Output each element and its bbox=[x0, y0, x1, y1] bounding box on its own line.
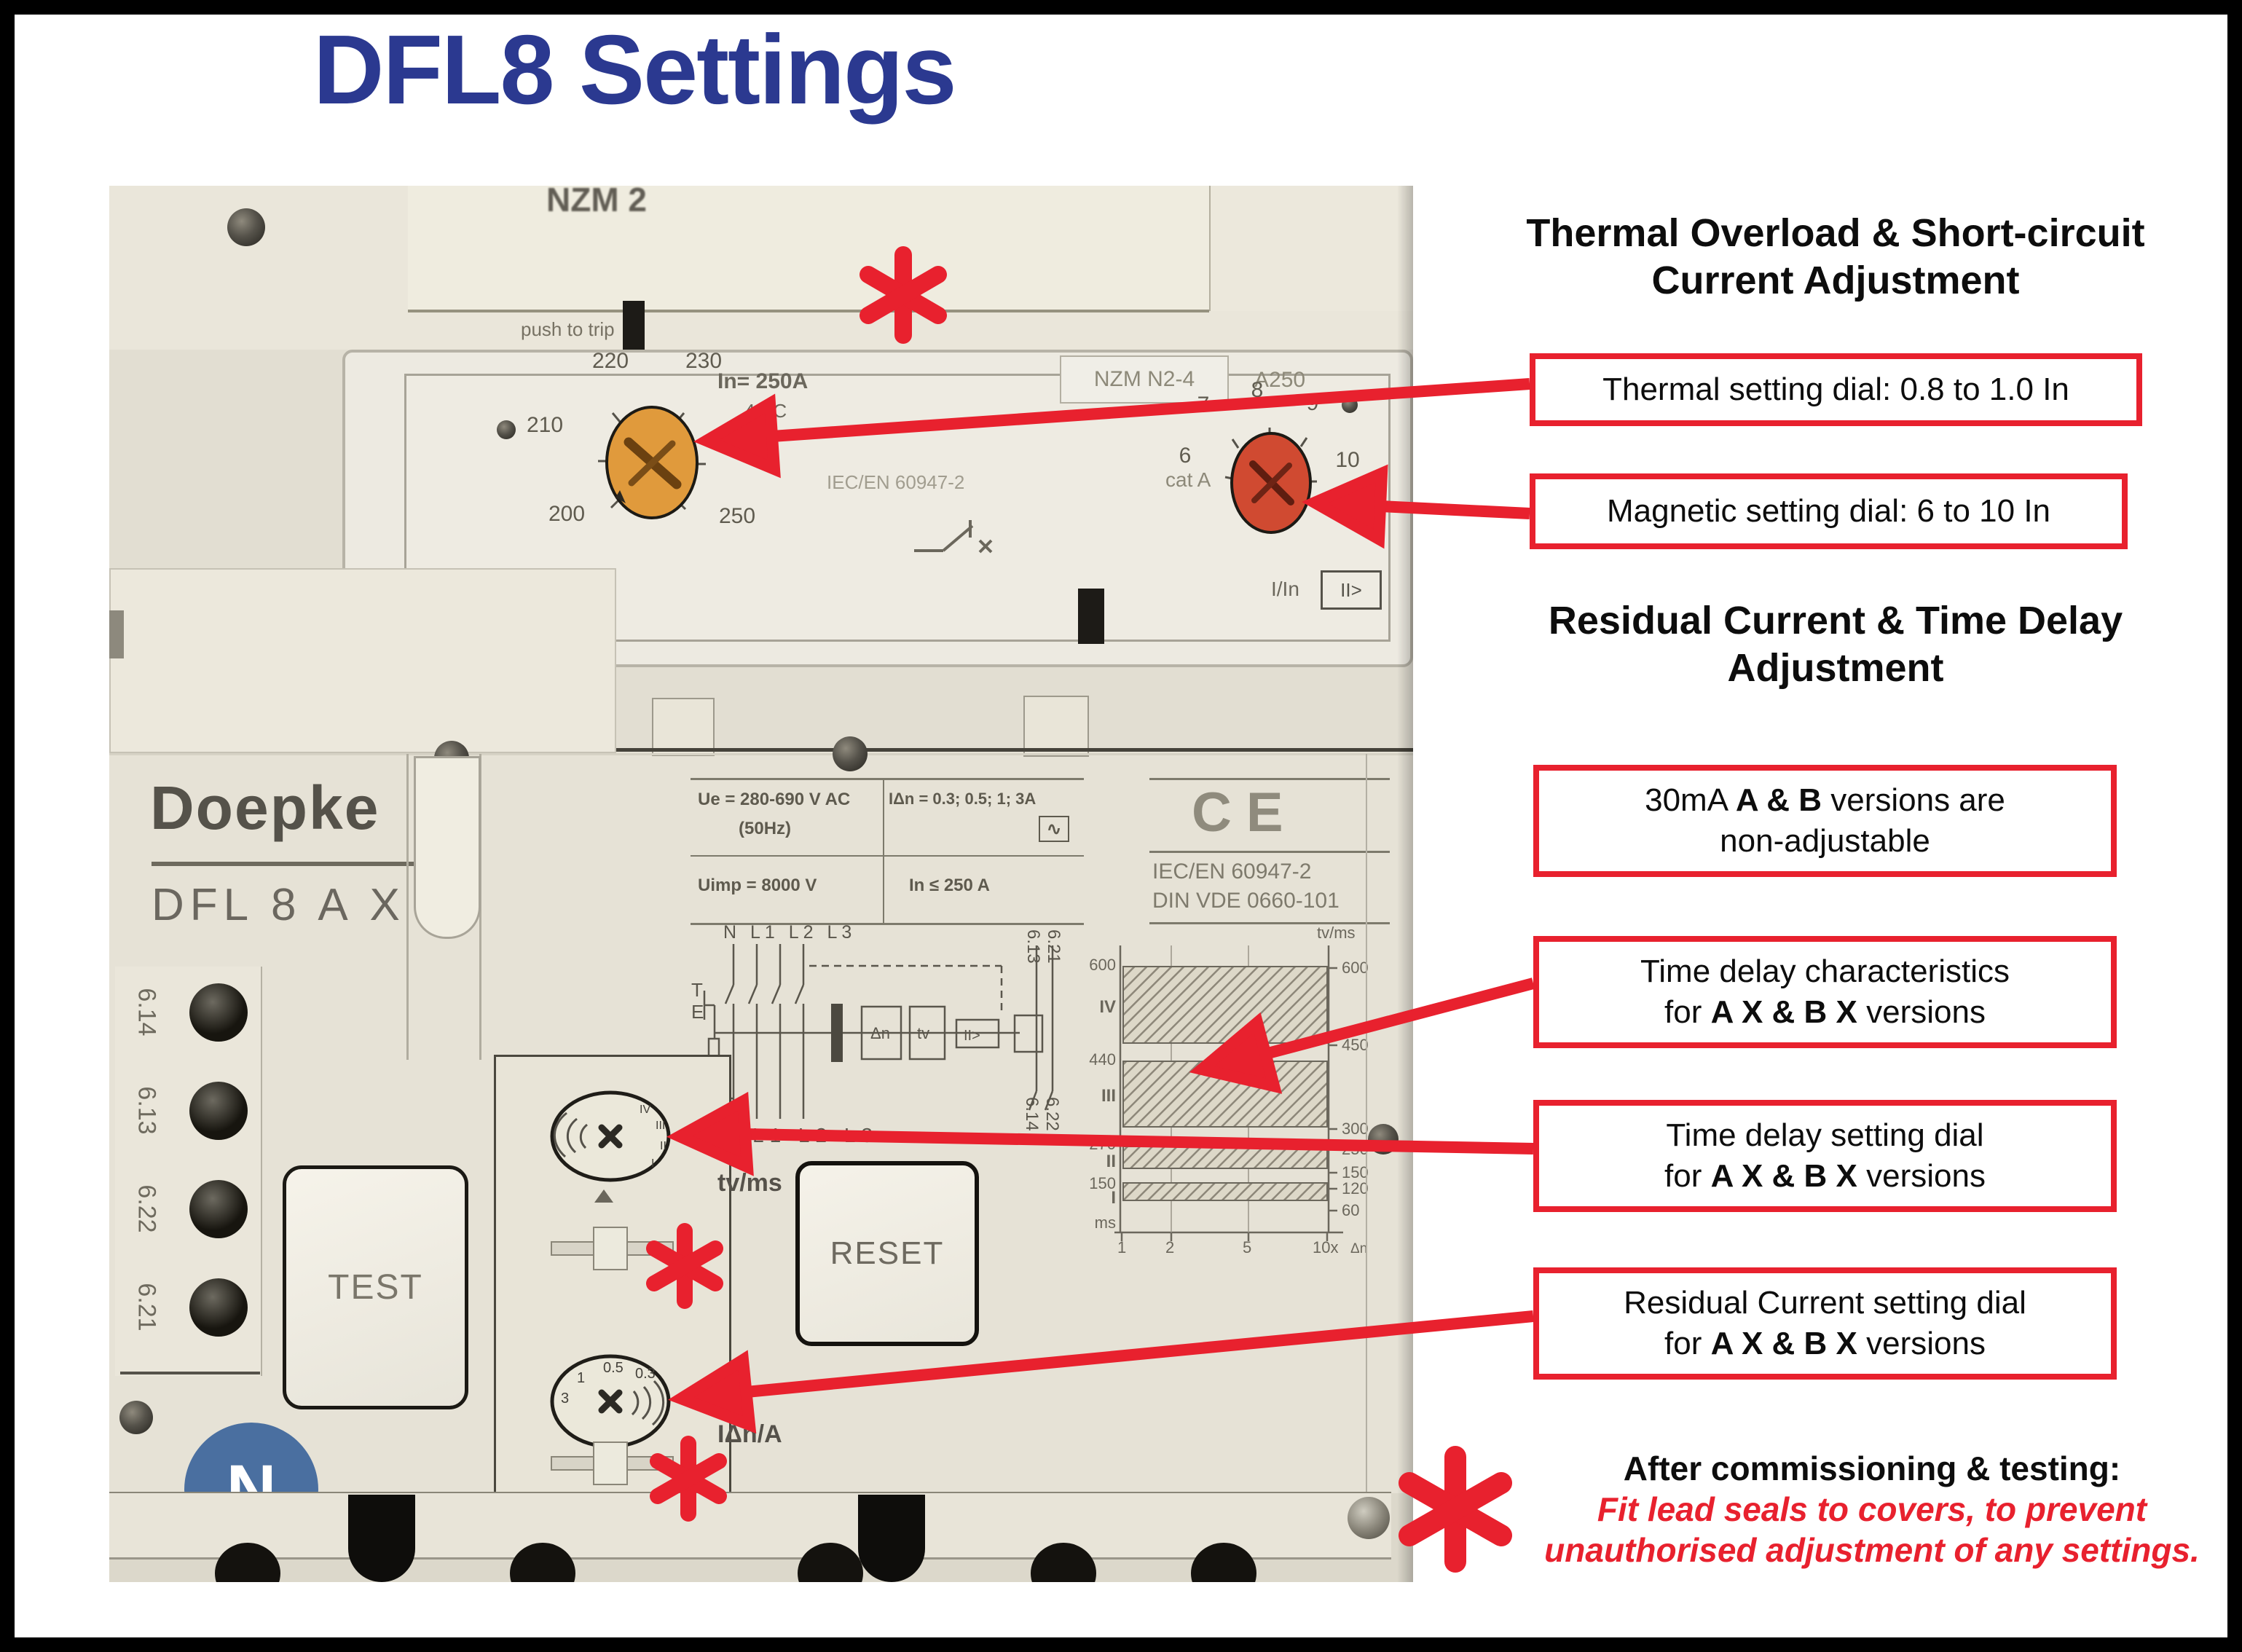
footnote-line: After commissioning & testing: bbox=[1522, 1448, 2222, 1489]
aux-terminal-label: 6.22 bbox=[133, 1184, 161, 1232]
time-position: III bbox=[656, 1120, 665, 1132]
rating-uimp: Uimp = 8000 V bbox=[698, 876, 817, 896]
standard-2: DIN VDE 0660-101 bbox=[1152, 889, 1340, 913]
callout-thermal-dial: Thermal setting dial: 0.8 to 1.0 In bbox=[1530, 353, 2142, 426]
callout-text: Thermal setting dial: 0.8 to 1.0 In bbox=[1602, 369, 2069, 410]
thermal-scale-220: 220 bbox=[581, 349, 640, 374]
aux-terminal-label: 6.14 bbox=[133, 988, 161, 1036]
residual-scale: 1 bbox=[577, 1370, 585, 1386]
rating-ue-freq: (50Hz) bbox=[739, 819, 791, 839]
rating-idn: IΔn = 0.3; 0.5; 1; 3A bbox=[889, 790, 1036, 809]
magnetic-symbol-box: II> bbox=[1321, 570, 1382, 610]
terminal-label: 6.14 bbox=[1022, 1097, 1042, 1131]
standard-1: IEC/EN 60947-2 bbox=[1152, 860, 1311, 884]
callout-text: Time delay characteristics bbox=[1640, 951, 2010, 992]
schematic-box2-label: tv bbox=[917, 1024, 929, 1042]
section-heading-thermal: Thermal Overload & Short-circuit Current… bbox=[1493, 210, 2178, 304]
schematic-box1-label: Δn bbox=[870, 1024, 890, 1042]
aux-terminal[interactable] bbox=[189, 1082, 248, 1140]
wave-icon: ∿ bbox=[1039, 816, 1069, 842]
breaker-lid bbox=[408, 186, 1209, 312]
right-tick: 120 bbox=[1342, 1179, 1369, 1197]
left-tick: ms bbox=[1095, 1214, 1116, 1232]
heading-line: Residual Current & Time Delay bbox=[1493, 597, 2178, 645]
magnetic-scale-6: 6 bbox=[1163, 444, 1207, 468]
section-heading-residual: Residual Current & Time Delay Adjustment bbox=[1493, 597, 2178, 692]
breaker-lid-right bbox=[1209, 186, 1413, 311]
aux-terminal[interactable] bbox=[189, 1278, 248, 1337]
cover-slot bbox=[1078, 589, 1104, 644]
table-rule bbox=[883, 778, 884, 925]
magnetic-unit-label: I/In bbox=[1271, 578, 1299, 601]
x-tick: 5 bbox=[1243, 1238, 1251, 1256]
residual-scale: 0.5 bbox=[603, 1360, 624, 1376]
callout-magnetic-dial: Magnetic setting dial: 6 to 10 In bbox=[1530, 473, 2128, 549]
footnote-line: unauthorised adjustment of any settings. bbox=[1522, 1530, 2222, 1570]
callout-text: Magnetic setting dial: 6 to 10 In bbox=[1607, 491, 2050, 532]
callout-text: for A X & B X versions bbox=[1664, 1156, 1986, 1197]
photo-edge-shadow bbox=[1397, 186, 1413, 1582]
seal-slider[interactable] bbox=[551, 1231, 671, 1264]
callout-text: 30mA A & B versions are bbox=[1645, 780, 2005, 821]
time-delay-unit-label: tv/ms bbox=[717, 1169, 782, 1197]
magnetic-scale-8: 8 bbox=[1235, 378, 1279, 403]
left-tick: IV bbox=[1099, 997, 1116, 1017]
page: DFL8 Settings NZM 2 push to trip In= 250… bbox=[0, 0, 2242, 1652]
callout-text: Time delay setting dial bbox=[1666, 1115, 1983, 1156]
screw-icon bbox=[1342, 397, 1358, 413]
schematic-t-label: T bbox=[691, 979, 703, 1001]
test-button[interactable]: TEST bbox=[283, 1165, 468, 1409]
terminal-label: 6.13 bbox=[1023, 929, 1043, 964]
right-tick: 60 bbox=[1342, 1201, 1359, 1219]
left-flap bbox=[109, 568, 616, 753]
left-tick: I bbox=[1111, 1188, 1116, 1208]
footnote-line: Fit lead seals to covers, to prevent bbox=[1522, 1489, 2222, 1530]
label-part: for bbox=[1664, 994, 1711, 1030]
x-tick: Δn bbox=[1350, 1241, 1367, 1256]
screw-icon bbox=[1348, 1497, 1390, 1539]
model-label: DFL 8 A X bbox=[152, 879, 406, 931]
aux-terminal[interactable] bbox=[189, 983, 248, 1042]
label-part: for bbox=[1664, 1158, 1711, 1194]
magnetic-scale-9: 9 bbox=[1291, 391, 1334, 416]
trip-curve-icon bbox=[910, 517, 1005, 562]
aux-terminal[interactable] bbox=[189, 1180, 248, 1238]
screw-icon bbox=[227, 208, 265, 246]
magnetic-setting-dial[interactable] bbox=[1224, 426, 1318, 535]
rating-ue: Ue = 280-690 V AC bbox=[698, 790, 850, 810]
callout-text: non-adjustable bbox=[1720, 821, 1930, 862]
callout-text: for A X & B X versions bbox=[1664, 992, 1986, 1033]
bottom-flap bbox=[109, 1493, 1391, 1559]
label-part-bold: A X & B X bbox=[1711, 1158, 1857, 1194]
delay-bands bbox=[1123, 967, 1327, 1200]
magnetic-scale-10: 10 bbox=[1326, 448, 1369, 473]
label-part: 30mA bbox=[1645, 782, 1736, 818]
asterisk-footnote-icon bbox=[1409, 1457, 1501, 1562]
x-tick: 1 bbox=[1117, 1238, 1126, 1256]
label-part: versions are bbox=[1822, 782, 2005, 818]
right-tick: 600 bbox=[1342, 959, 1369, 977]
screw-icon bbox=[119, 1401, 153, 1434]
cover-standard-label: IEC/EN 60947-2 bbox=[827, 471, 964, 494]
callout-time-delay-dial: Time delay setting dial for A X & B X ve… bbox=[1533, 1100, 2117, 1212]
left-tick: 600 bbox=[1089, 956, 1116, 974]
table-rule bbox=[691, 778, 1084, 780]
thermal-setting-dial[interactable] bbox=[594, 397, 710, 528]
rule bbox=[1149, 922, 1390, 924]
breaker-photo: NZM 2 push to trip In= 250A 40°C NZM N2-… bbox=[109, 186, 1413, 1582]
rating-in-max: In ≤ 250 A bbox=[909, 876, 990, 896]
footnote: After commissioning & testing: Fit lead … bbox=[1522, 1448, 2222, 1570]
schematic-e-label: E bbox=[691, 1001, 704, 1023]
approvals-block: CE IEC/EN 60947-2 DIN VDE 0660-101 bbox=[1149, 778, 1399, 925]
right-tick: 300 bbox=[1342, 1120, 1369, 1138]
time-delay-setting-dial[interactable]: I II III IV bbox=[545, 1084, 676, 1189]
callout-text: for A X & B X versions bbox=[1664, 1323, 1986, 1364]
slider-tab[interactable] bbox=[593, 1227, 628, 1270]
magnetic-scale-7: 7 bbox=[1181, 393, 1225, 417]
label-part-bold: A X & B X bbox=[1711, 994, 1857, 1030]
ce-mark: CE bbox=[1192, 781, 1298, 844]
screw-icon bbox=[1368, 1124, 1399, 1155]
heading-line: Thermal Overload & Short-circuit bbox=[1493, 210, 2178, 257]
panel-seam bbox=[1366, 754, 1367, 1493]
residual-current-setting-dial[interactable]: 3 1 0.5 0.3 bbox=[545, 1348, 676, 1455]
x-tick: 10x bbox=[1313, 1238, 1338, 1256]
thermal-scale-200: 200 bbox=[538, 502, 596, 527]
thermal-scale-210: 210 bbox=[516, 413, 574, 438]
label-part-bold: A & B bbox=[1736, 782, 1822, 818]
screw-icon bbox=[833, 736, 868, 771]
callout-30ma: 30mA A & B versions are non-adjustable bbox=[1533, 765, 2117, 877]
label-part-bold: A X & B X bbox=[1711, 1326, 1857, 1361]
residual-unit-label: IΔn/A bbox=[717, 1420, 782, 1449]
reset-button[interactable]: RESET bbox=[795, 1161, 979, 1346]
screw-icon bbox=[497, 420, 516, 439]
busbar-tongue bbox=[348, 1495, 415, 1582]
right-tick: 450 bbox=[1342, 1036, 1369, 1054]
current-transformer bbox=[831, 1004, 843, 1062]
time-position: IV bbox=[640, 1104, 650, 1116]
label-part: for bbox=[1664, 1326, 1711, 1361]
chart-unit-label: tv/ms bbox=[1317, 927, 1356, 942]
time-position: II bbox=[660, 1140, 666, 1152]
callout-text: Residual Current setting dial bbox=[1624, 1283, 2026, 1323]
actuator-tongue[interactable] bbox=[414, 756, 481, 939]
residual-scale: 0.3 bbox=[635, 1366, 656, 1382]
callout-residual-dial: Residual Current setting dial for A X & … bbox=[1533, 1267, 2117, 1380]
flap-notch bbox=[109, 610, 124, 658]
left-tick: III bbox=[1101, 1086, 1116, 1106]
right-tick: 250 bbox=[1342, 1140, 1369, 1158]
schematic-box3-label: II> bbox=[964, 1028, 980, 1044]
wiring-schematic: N L1 L2 L3 N L1 L2 L3 T E Δn tv II> 6.13… bbox=[688, 924, 1063, 1153]
panel-seam bbox=[109, 753, 1413, 755]
left-tick: 440 bbox=[1089, 1050, 1116, 1069]
schematic-bottom-label: N L1 L2 L3 bbox=[720, 1124, 878, 1146]
time-position: I bbox=[651, 1157, 654, 1170]
callout-characteristics: Time delay characteristics for A X & B X… bbox=[1533, 936, 2117, 1048]
heading-line: Adjustment bbox=[1493, 645, 2178, 692]
aux-terminal-label: 6.13 bbox=[133, 1086, 161, 1134]
top-model-label: NZM 2 bbox=[546, 186, 647, 219]
terminal-label: 6.21 bbox=[1044, 929, 1063, 964]
ratings-table: Ue = 280-690 V AC (50Hz) IΔn = 0.3; 0.5;… bbox=[691, 778, 1084, 925]
push-to-trip-label: push to trip bbox=[521, 318, 615, 341]
left-tick: II bbox=[1106, 1152, 1116, 1171]
schematic-top-label: N L1 L2 L3 bbox=[723, 924, 856, 943]
residual-scale: 3 bbox=[561, 1391, 569, 1407]
brand-logo: Doepke bbox=[150, 773, 379, 843]
time-delay-chart: 600 IV 440 III 270 II 150 I ms tv/ms 600… bbox=[1087, 927, 1407, 1262]
table-rule bbox=[691, 855, 1084, 857]
thermal-scale-240: 240 bbox=[728, 419, 787, 444]
left-tick: 270 bbox=[1089, 1135, 1116, 1153]
label-part: versions bbox=[1857, 994, 1986, 1030]
cover-latch[interactable] bbox=[652, 698, 715, 756]
rule bbox=[120, 1372, 260, 1374]
busbar-tongue bbox=[858, 1495, 925, 1582]
thermal-scale-250: 250 bbox=[708, 504, 766, 529]
seal-slider[interactable] bbox=[551, 1446, 671, 1479]
category-label: cat A bbox=[1165, 468, 1211, 492]
page-title: DFL8 Settings bbox=[313, 13, 956, 126]
panel-seam bbox=[406, 754, 409, 1060]
label-part: versions bbox=[1857, 1158, 1986, 1194]
aux-terminal-label: 6.21 bbox=[133, 1283, 161, 1331]
label-part: versions bbox=[1857, 1326, 1986, 1361]
x-tick: 2 bbox=[1165, 1238, 1174, 1256]
rule bbox=[1149, 778, 1390, 780]
thermal-scale-230: 230 bbox=[674, 349, 733, 374]
rule bbox=[1149, 851, 1390, 853]
triangle-marker-icon bbox=[594, 1189, 613, 1203]
slider-tab[interactable] bbox=[593, 1441, 628, 1485]
heading-line: Current Adjustment bbox=[1493, 257, 2178, 304]
terminal-label: 6.22 bbox=[1042, 1097, 1062, 1131]
